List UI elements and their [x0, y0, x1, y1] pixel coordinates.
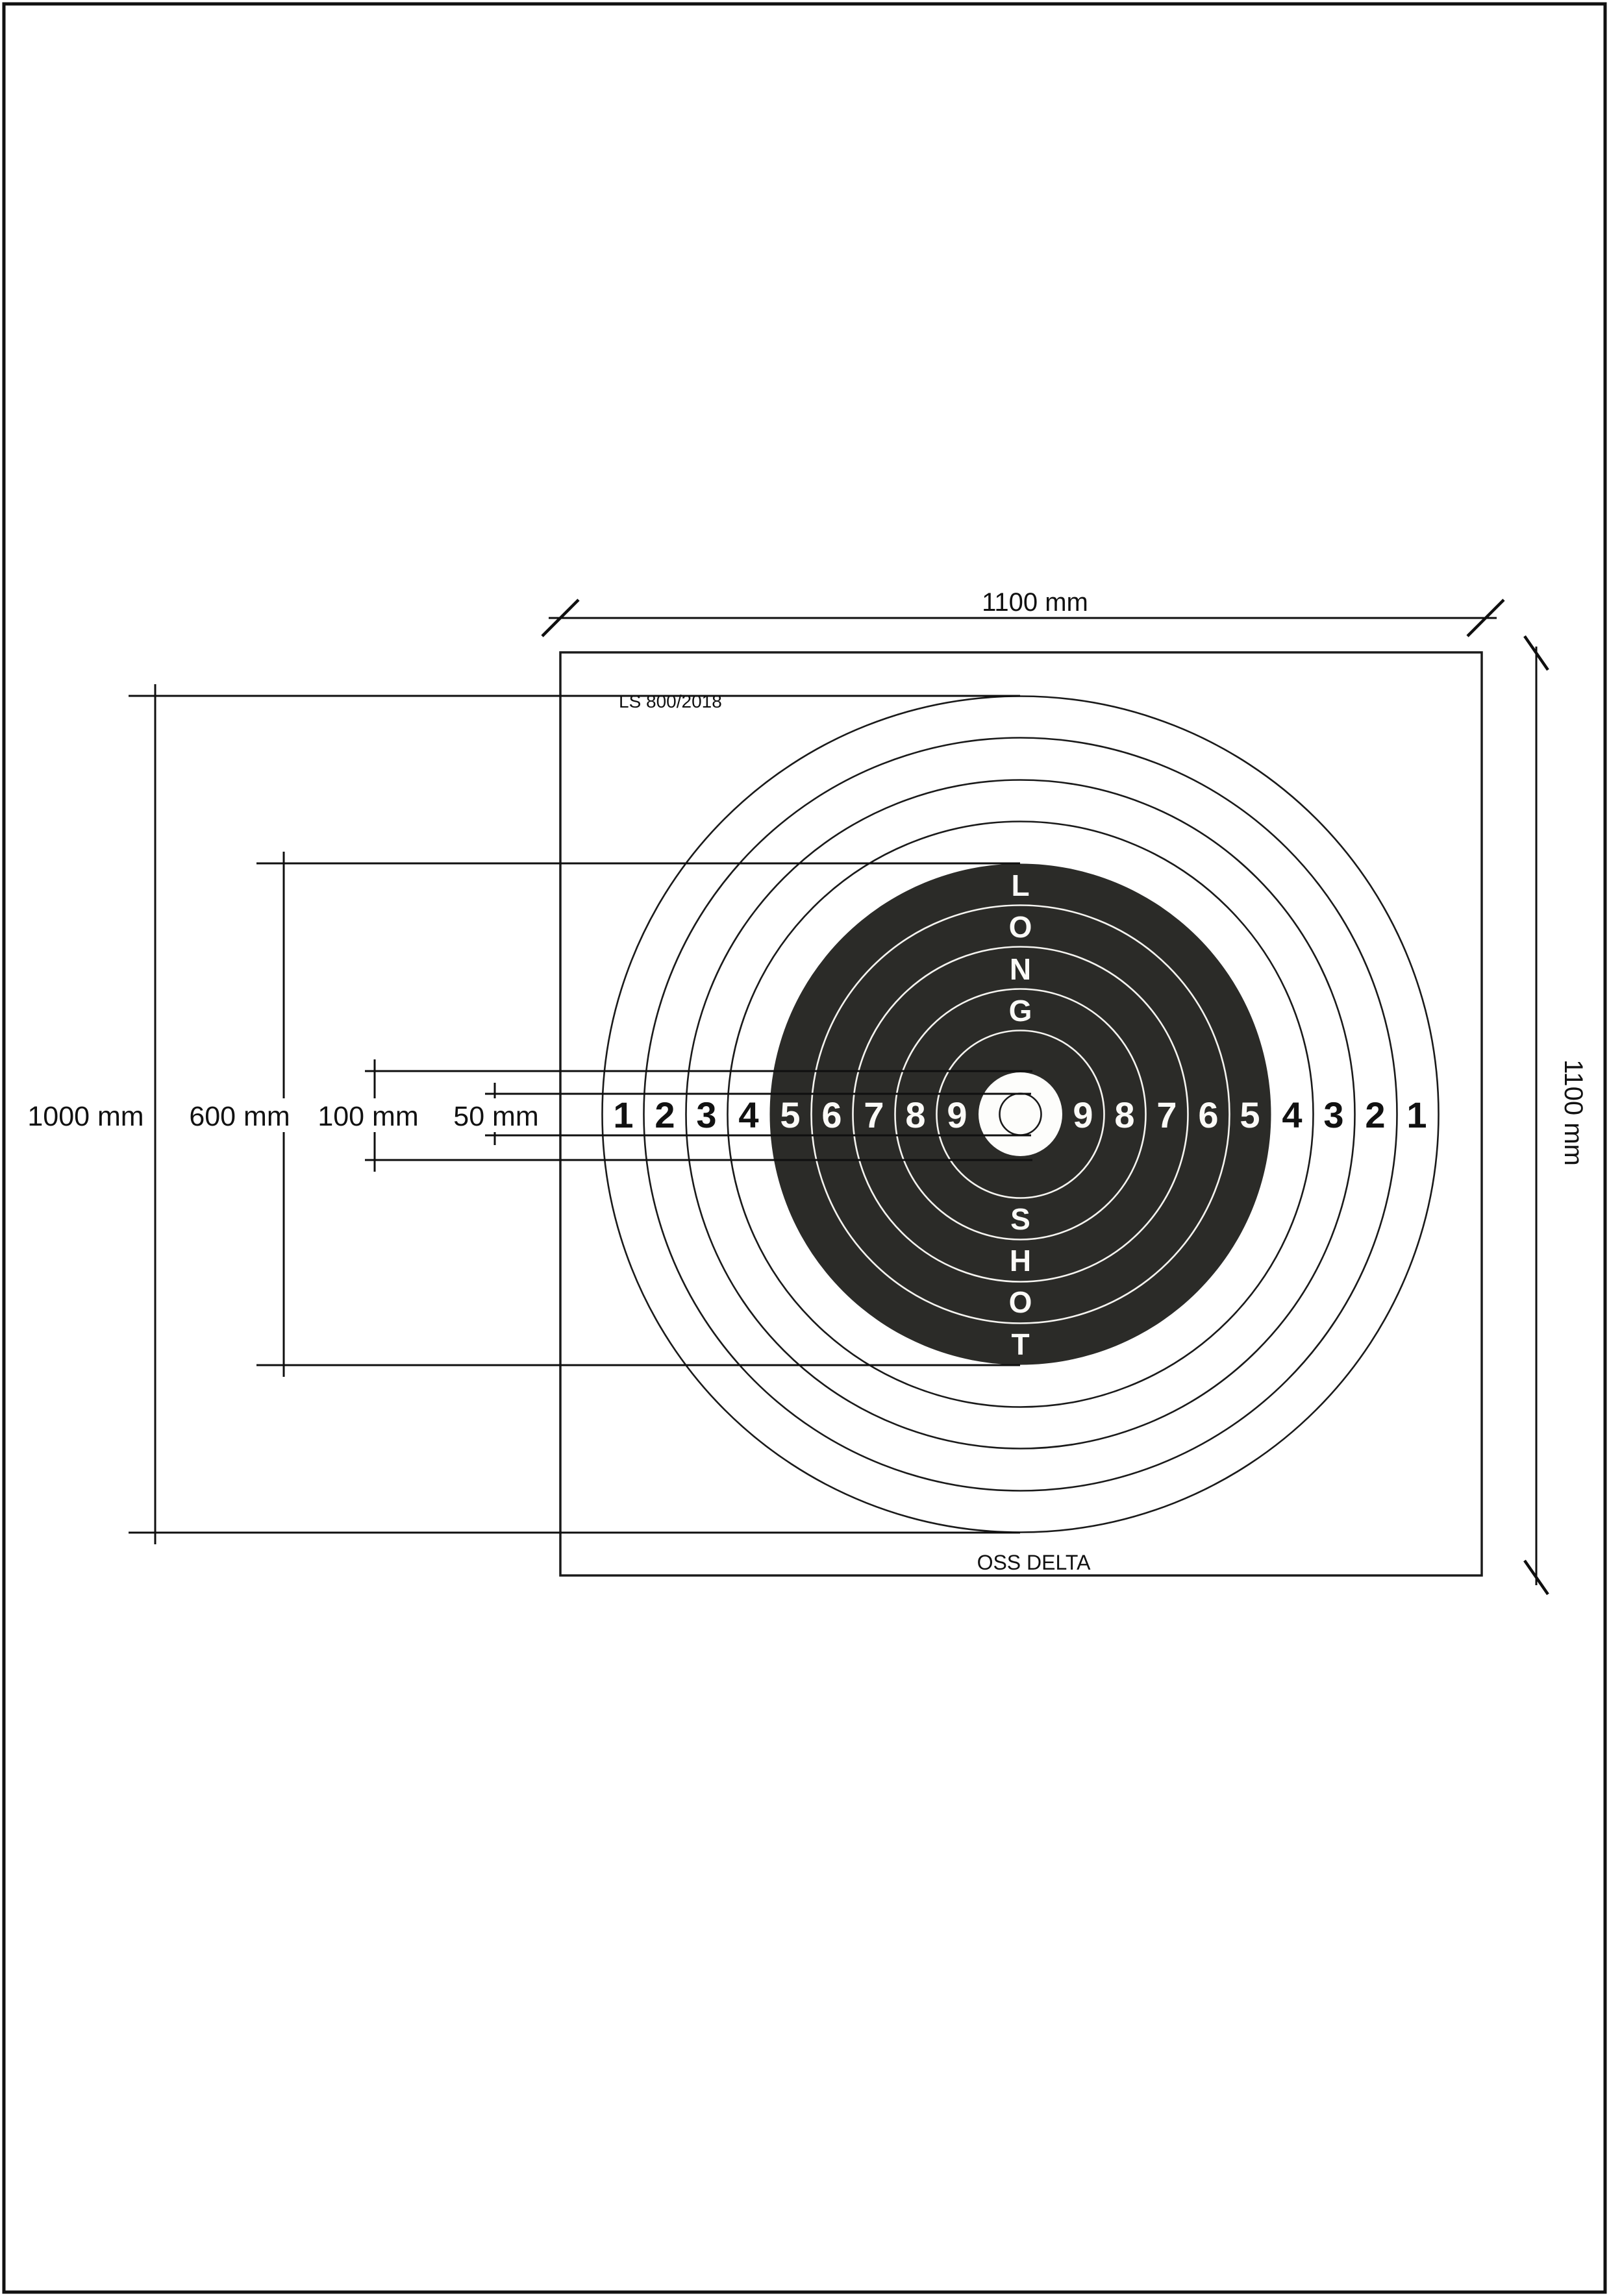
ring-number: 5 — [1240, 1094, 1260, 1135]
brand-letter: T — [1011, 1327, 1029, 1361]
brand-letter: L — [1011, 869, 1029, 902]
dim-label-1100mm-top: 1100 mm — [982, 588, 1088, 617]
brand-letter: O — [1009, 910, 1032, 944]
ring-numbers-right: 9 8 7 6 5 4 3 2 1 — [1073, 1094, 1427, 1135]
dim-label-600mm: 600 mm — [189, 1101, 290, 1132]
ring-number: 1 — [1406, 1094, 1427, 1135]
ring-number: 3 — [1323, 1094, 1343, 1135]
brand-letter: O — [1009, 1285, 1032, 1319]
dim-label-50mm: 50 mm — [453, 1101, 538, 1132]
ring-numbers-left: 1 2 3 4 5 6 7 8 9 — [613, 1094, 967, 1135]
bullseye-white-circle — [979, 1072, 1062, 1156]
model-label: LS 800/2018 — [619, 691, 722, 711]
ring-number: 1 — [613, 1094, 633, 1135]
brand-letter: G — [1009, 994, 1032, 1028]
dim-label-1100mm-right: 1100 mm — [1559, 1059, 1588, 1166]
brand-letter: H — [1010, 1244, 1031, 1278]
brand-letter: N — [1010, 952, 1031, 986]
dim-label-100mm: 100 mm — [318, 1101, 418, 1132]
dim-label-1000mm: 1000 mm — [27, 1101, 143, 1132]
ring-number: 7 — [1156, 1094, 1177, 1135]
brand-letter: S — [1010, 1202, 1030, 1236]
ring-number: 2 — [655, 1094, 675, 1135]
ring-number: 2 — [1365, 1094, 1385, 1135]
ring-number: 9 — [947, 1094, 967, 1135]
target-drawing-page: 1000 mm 600 mm 100 mm 50 mm 1100 mm 1100… — [0, 0, 1609, 2296]
ring-number: 9 — [1073, 1094, 1093, 1135]
ring-number: 7 — [864, 1094, 884, 1135]
ring-number: 8 — [1114, 1094, 1134, 1135]
ring-number: 3 — [696, 1094, 716, 1135]
ring-number: 5 — [780, 1094, 800, 1135]
ring-number: 6 — [1198, 1094, 1218, 1135]
ring-number: 6 — [821, 1094, 842, 1135]
ring-number: 4 — [738, 1094, 758, 1135]
ring-number: 4 — [1282, 1094, 1302, 1135]
ring-number: 8 — [905, 1094, 925, 1135]
brand-label: OSS DELTA — [977, 1551, 1091, 1574]
